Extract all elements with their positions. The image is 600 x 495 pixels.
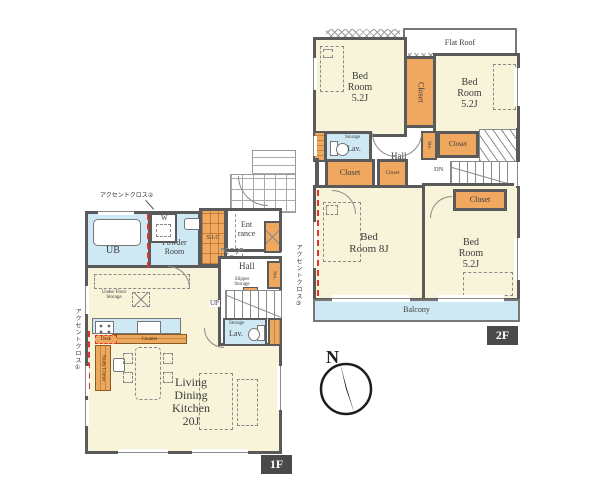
storage-2f: Sto. (421, 131, 437, 160)
window (277, 366, 284, 410)
window (514, 238, 521, 280)
storage-label: Storage (345, 135, 360, 140)
kitchen-counter (92, 318, 181, 334)
kitchen-sink-icon (137, 321, 161, 334)
window (98, 208, 134, 215)
pillow-icon (323, 49, 333, 58)
ub-label: UB (106, 246, 120, 257)
window (438, 295, 504, 302)
bedroom-2f-top-left: Bed Room 5.2J (313, 37, 407, 137)
sic-label: S.I.C (206, 234, 219, 241)
window (514, 68, 521, 106)
desk: Desk (95, 335, 117, 344)
slipper-storage-label: Slipper Storage (229, 277, 255, 288)
bedroom-label: Bed Room 5.2J (450, 237, 492, 270)
window (310, 58, 317, 90)
bathtub-icon (93, 219, 141, 246)
balcony-label: Balcony (403, 306, 430, 315)
storage-1f: Sto. (267, 261, 282, 289)
dining-table-icon (135, 347, 161, 400)
window (514, 162, 521, 186)
ldk-label: Living Dining Kitchen 20J (161, 376, 221, 428)
window (332, 295, 410, 302)
lavatory-1f: Storage Lav. (223, 318, 267, 346)
unit-bath: UB (85, 211, 151, 268)
study-corner-label: Study Corner (101, 355, 106, 382)
porch-steps (252, 150, 296, 175)
closet-label: Closet (416, 82, 425, 102)
accent-cloth-label-2f: アクセントクロス③ (294, 244, 303, 344)
floor-badge-1f: 1F (261, 455, 292, 474)
entrance-label: Ent rance (233, 221, 261, 239)
bed-icon (493, 64, 516, 110)
compass-needle-icon (340, 363, 355, 415)
floorplan: Flat Roof Bed Room 5.2J Closet Bed Room … (0, 0, 600, 495)
window (82, 400, 89, 426)
bed-icon (463, 272, 513, 296)
accent-cloth-label-1f-left: アクセントクロス① (73, 308, 82, 404)
window (310, 136, 317, 156)
entrance-step (235, 214, 236, 248)
lavatory-2f: Storage Lav. (324, 131, 372, 162)
under-floor-storage-icon (132, 292, 150, 307)
down-label: DN (434, 167, 443, 174)
study-corner: Study Corner (95, 345, 111, 391)
up-label: UP (209, 300, 220, 307)
sto-label: Sto. (271, 271, 277, 280)
flat-roof-label: Flat Roof (445, 39, 475, 48)
compass: N (310, 342, 382, 420)
ldk-line4: 20J (161, 415, 221, 428)
shoe-cabinet (264, 221, 281, 253)
closet-label: Closet (385, 170, 399, 176)
closet-2f-hall-left: Closet (325, 159, 375, 188)
closet-label: Closet (470, 196, 490, 205)
washer-icon (156, 224, 171, 237)
closet-label: Closet (340, 169, 360, 178)
closet-2f-hall-small: Closet (377, 159, 408, 188)
window (118, 449, 168, 456)
bedroom-label: Bed Room 5.2J (339, 71, 381, 104)
stair-diagonal (227, 295, 281, 318)
desk-label: Desk (101, 337, 111, 342)
powder-room: Powder Room W (148, 211, 201, 268)
accent-cloth-label-1f-top: アクセントクロス② (100, 193, 153, 199)
label-arrow (145, 200, 154, 210)
tv-board-icon (237, 379, 258, 426)
wall-hatch (326, 29, 400, 37)
entrance: Ent rance (225, 208, 282, 252)
chair-icon (163, 353, 173, 364)
bedroom-2f-top-right: Bed Room 5.2J (433, 53, 520, 134)
window (82, 366, 89, 396)
chair-icon (123, 372, 133, 383)
compass-north-label: N (326, 347, 339, 367)
window (82, 286, 89, 314)
toilet-icon (248, 328, 260, 341)
floor-badge-2f: 2F (487, 326, 518, 345)
window (310, 222, 317, 268)
wall-segment (315, 158, 319, 188)
stove-icon (95, 321, 114, 334)
lav-shelf (268, 318, 282, 346)
closet-2f-between: Closet (404, 56, 436, 128)
under-floor-storage-label: Under Floor Storage (98, 290, 130, 301)
sto-label: Sto. (426, 141, 432, 150)
storage-label: Storage (229, 321, 244, 326)
stairs-2f-winder (479, 129, 520, 162)
balcony: Balcony (313, 299, 520, 322)
closet-2f-bedroom: Closet (453, 189, 507, 211)
window (192, 449, 248, 456)
accent-wall-line-2f (317, 190, 319, 296)
lav-label: Lav. (347, 145, 361, 153)
lav-label: Lav. (229, 330, 243, 338)
bedroom-label: Bed Room 5.2J (449, 77, 491, 110)
hall-1f-label: Hall (239, 262, 255, 271)
closet-label: Closet (449, 141, 467, 149)
accent-wall-line-1f-a (147, 214, 149, 268)
bedroom-2f-main: Bed Room 8J (313, 185, 425, 301)
chair-icon (123, 353, 133, 364)
washer-label: W (161, 215, 168, 222)
counter-label: Counter (141, 337, 157, 342)
washer-space: W (150, 213, 177, 243)
stairs-1f-up (225, 290, 282, 319)
door-arc (372, 133, 396, 157)
door-arc (398, 133, 422, 157)
closet-2f-hall-right: Closet (437, 131, 479, 158)
counter: Counter (112, 334, 187, 344)
